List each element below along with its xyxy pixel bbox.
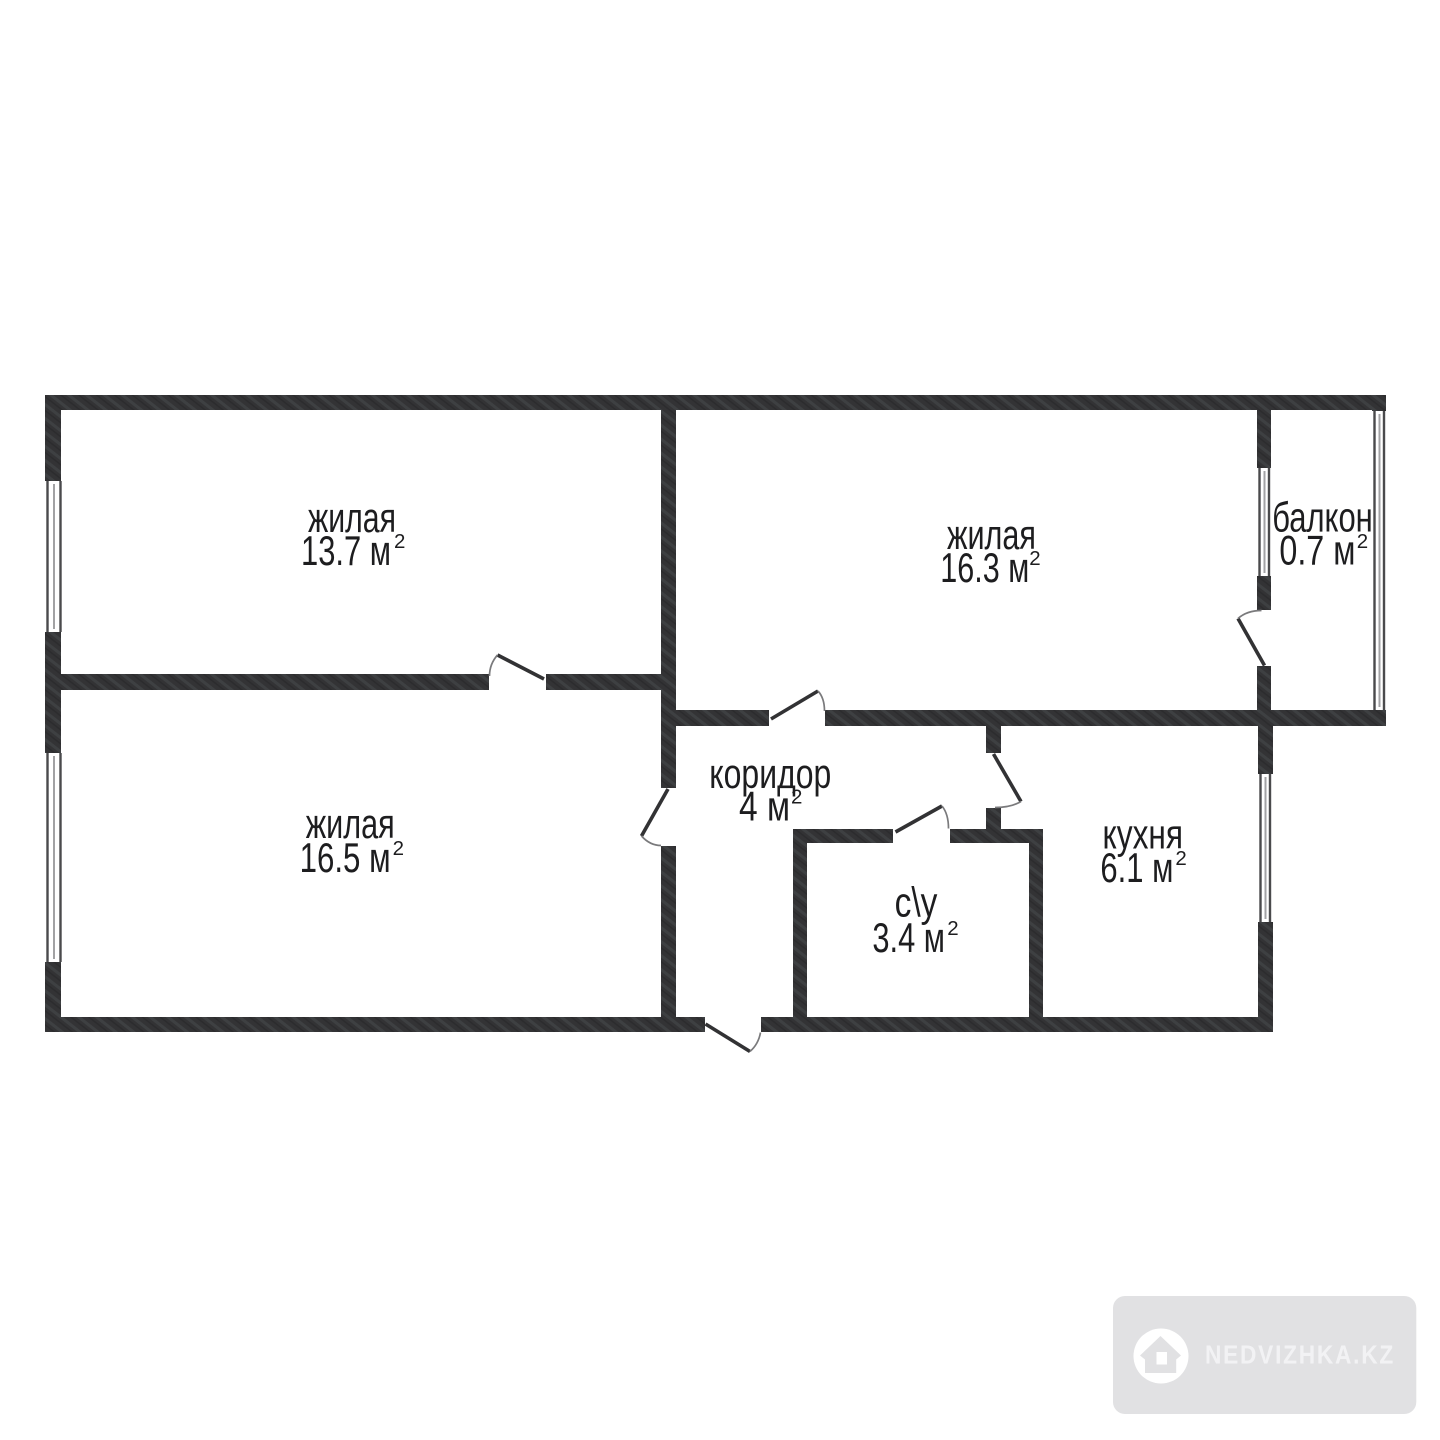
- svg-text:2: 2: [1175, 847, 1186, 870]
- svg-text:2: 2: [1357, 530, 1368, 553]
- svg-text:4 м: 4 м: [739, 783, 790, 830]
- svg-text:2: 2: [791, 786, 802, 809]
- svg-text:3.4 м: 3.4 м: [872, 914, 945, 961]
- svg-text:6.1 м: 6.1 м: [1100, 844, 1173, 891]
- svg-text:2: 2: [393, 837, 404, 860]
- svg-text:2: 2: [394, 530, 405, 553]
- svg-text:2: 2: [1029, 547, 1040, 570]
- svg-text:2: 2: [947, 917, 958, 940]
- svg-text:NEDVIZHKA.KZ: NEDVIZHKA.KZ: [1205, 1340, 1395, 1370]
- svg-text:0.7 м: 0.7 м: [1279, 526, 1355, 573]
- svg-text:13.7 м: 13.7 м: [301, 527, 391, 574]
- svg-text:16.5 м: 16.5 м: [300, 834, 391, 881]
- svg-text:16.3 м: 16.3 м: [940, 544, 1029, 591]
